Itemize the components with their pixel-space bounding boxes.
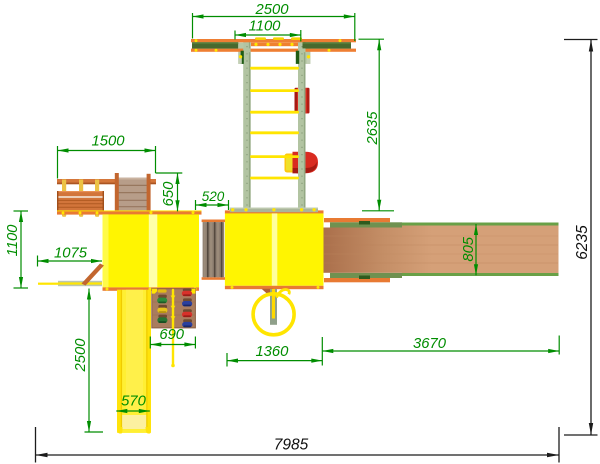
svg-text:805: 805 bbox=[461, 236, 477, 261]
svg-text:1075: 1075 bbox=[54, 246, 88, 262]
svg-text:1360: 1360 bbox=[255, 344, 289, 360]
svg-text:570: 570 bbox=[121, 393, 146, 409]
svg-text:2635: 2635 bbox=[365, 111, 381, 146]
svg-text:7985: 7985 bbox=[274, 437, 309, 454]
svg-text:2500: 2500 bbox=[255, 2, 290, 18]
svg-text:3670: 3670 bbox=[413, 336, 447, 352]
svg-text:1100: 1100 bbox=[249, 18, 282, 34]
svg-text:520: 520 bbox=[202, 189, 225, 204]
svg-text:1500: 1500 bbox=[92, 133, 126, 149]
svg-text:650: 650 bbox=[161, 181, 177, 206]
svg-text:2500: 2500 bbox=[73, 338, 89, 373]
svg-text:690: 690 bbox=[159, 327, 184, 343]
svg-text:1100: 1100 bbox=[5, 224, 21, 257]
svg-text:6235: 6235 bbox=[574, 225, 591, 260]
